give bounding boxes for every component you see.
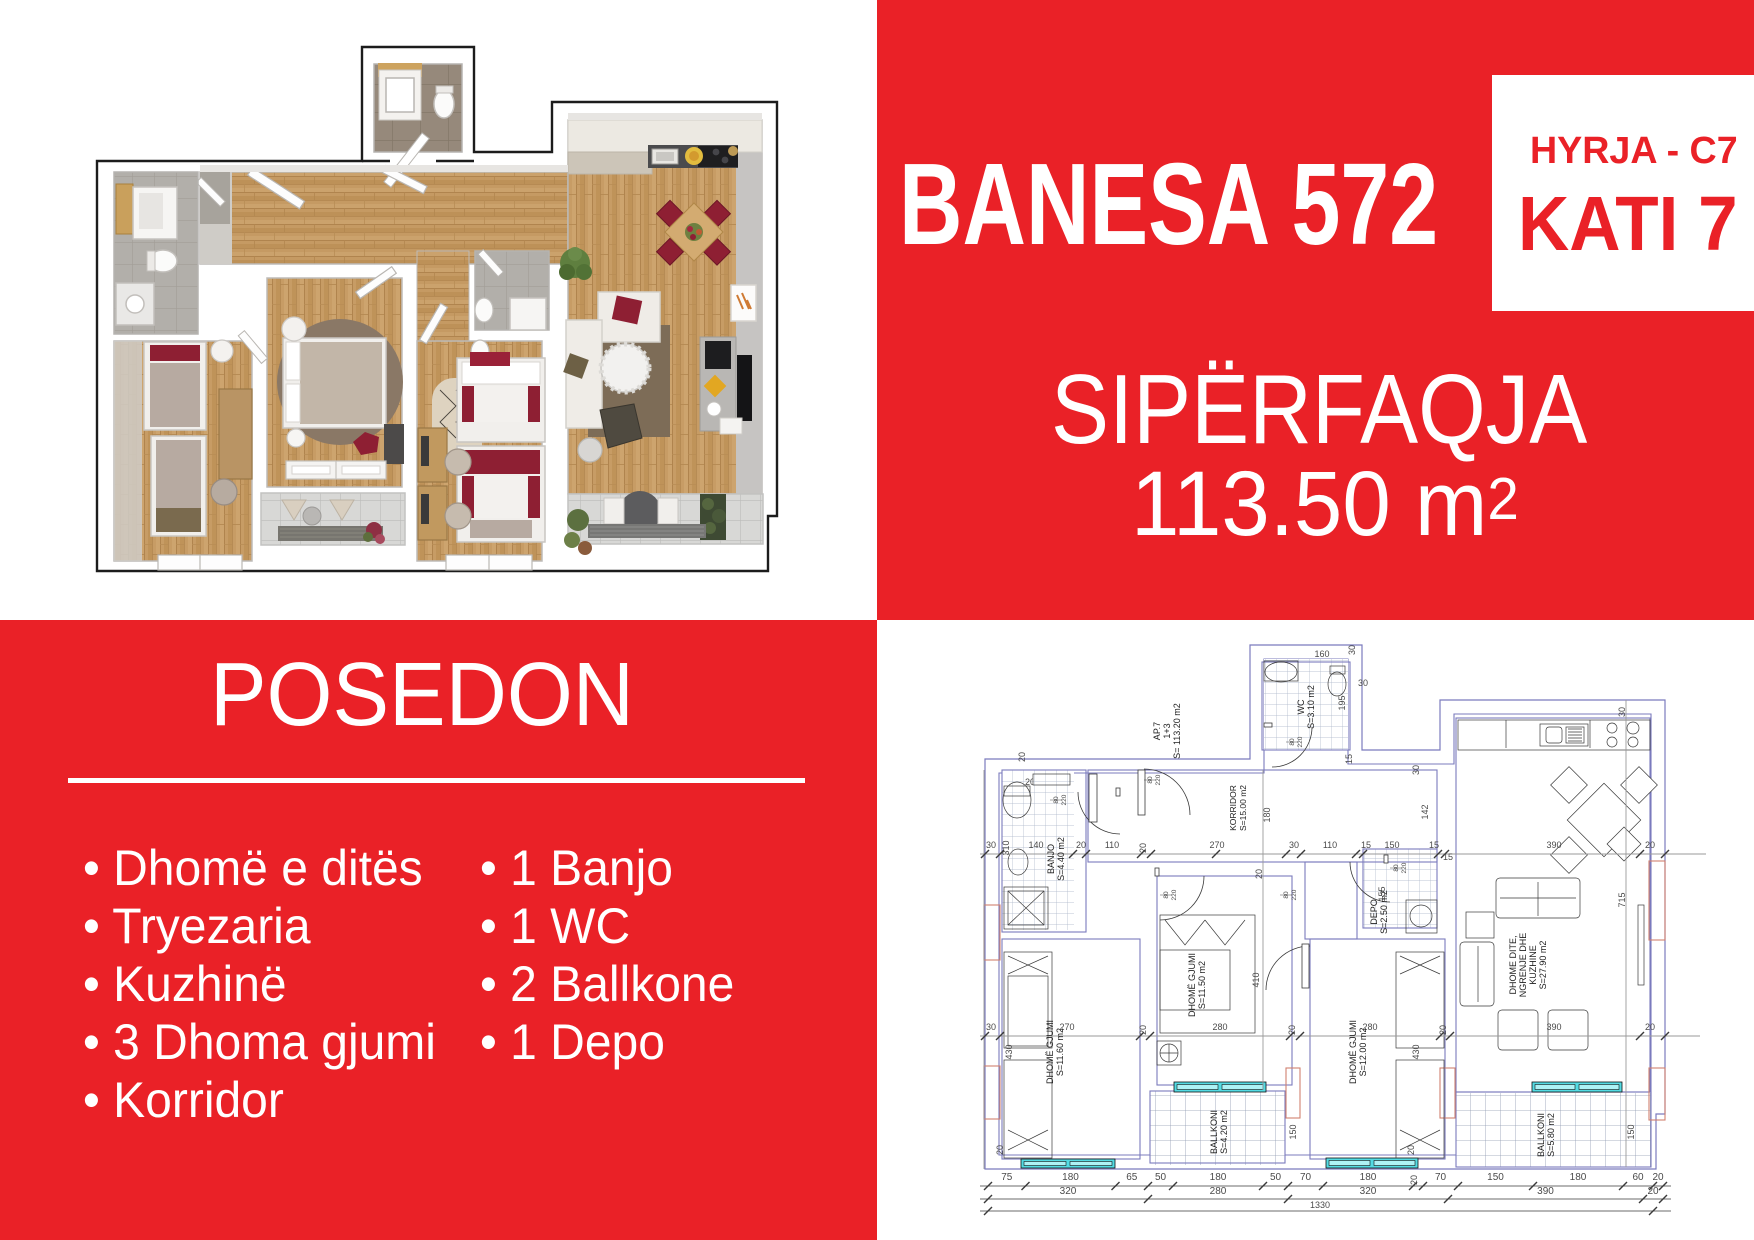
svg-text:20: 20	[1138, 843, 1148, 853]
svg-text:140: 140	[1028, 840, 1043, 850]
svg-text:430: 430	[1411, 1044, 1421, 1059]
svg-text:30: 30	[1411, 765, 1421, 775]
svg-text:KORRIDOR: KORRIDOR	[1228, 785, 1238, 831]
svg-text:30: 30	[1289, 840, 1299, 850]
svg-text:150: 150	[1384, 840, 1399, 850]
svg-text:180: 180	[1210, 1172, 1227, 1183]
svg-text:180: 180	[1262, 807, 1272, 822]
svg-text:65: 65	[1126, 1172, 1138, 1183]
svg-text:142: 142	[1420, 804, 1430, 819]
svg-text:DHOMË GJUMI: DHOMË GJUMI	[1045, 1020, 1055, 1084]
svg-text:430: 430	[1004, 1044, 1014, 1059]
svg-text:150: 150	[1288, 1124, 1298, 1139]
svg-text:150: 150	[1487, 1172, 1504, 1183]
svg-text:20: 20	[1287, 1025, 1297, 1035]
svg-text:60: 60	[1632, 1172, 1644, 1183]
svg-text:20: 20	[1076, 840, 1086, 850]
svg-text:270: 270	[1209, 840, 1224, 850]
svg-text:220: 220	[1171, 889, 1178, 900]
svg-text:70: 70	[1300, 1172, 1312, 1183]
svg-text:AP.7: AP.7	[1152, 722, 1162, 740]
svg-text:410: 410	[1251, 972, 1261, 987]
svg-text:S=4.20 m2: S=4.20 m2	[1219, 1110, 1229, 1154]
svg-text:180: 180	[1360, 1172, 1377, 1183]
svg-text:20: 20	[1645, 840, 1655, 850]
svg-text:150: 150	[1626, 1124, 1636, 1139]
svg-text:20: 20	[1645, 1022, 1655, 1032]
svg-text:30: 30	[1358, 678, 1368, 688]
svg-text:20: 20	[1647, 1186, 1659, 1197]
svg-text:20: 20	[1138, 1025, 1148, 1035]
svg-text:NGRENJE DHE: NGRENJE DHE	[1518, 933, 1528, 998]
svg-text:110: 110	[1323, 840, 1337, 850]
svg-text:S=2.50 m2: S=2.50 m2	[1379, 890, 1389, 934]
svg-text:BALLKONI: BALLKONI	[1536, 1113, 1546, 1157]
svg-text:390: 390	[1546, 840, 1561, 850]
svg-text:220: 220	[1291, 889, 1298, 900]
svg-text:320: 320	[1060, 1186, 1077, 1197]
svg-text:180: 180	[1062, 1172, 1079, 1183]
svg-text:310: 310	[1001, 840, 1011, 855]
svg-text:30: 30	[1617, 707, 1627, 717]
svg-text:DHOMË GJUMI: DHOMË GJUMI	[1348, 1020, 1358, 1084]
svg-text:15: 15	[1361, 840, 1371, 850]
svg-text:S=4.40 m2: S=4.40 m2	[1056, 837, 1066, 881]
svg-text:220: 220	[1061, 794, 1068, 805]
svg-text:15: 15	[1344, 754, 1354, 764]
svg-text:110: 110	[1105, 840, 1119, 850]
svg-text:50: 50	[1155, 1172, 1167, 1183]
svg-text:1330: 1330	[1310, 1200, 1330, 1210]
svg-text:S=11.50 m2: S=11.50 m2	[1197, 961, 1207, 1009]
svg-text:220: 220	[1401, 862, 1408, 873]
svg-text:DEPO: DEPO	[1369, 899, 1379, 925]
svg-text:S=5.80 m2: S=5.80 m2	[1546, 1113, 1556, 1157]
svg-text:20: 20	[1409, 1175, 1419, 1185]
svg-text:S=15.00 m2: S=15.00 m2	[1238, 785, 1248, 831]
svg-text:20: 20	[1254, 869, 1264, 879]
svg-text:20: 20	[995, 1145, 1005, 1155]
svg-text:BALLKONI: BALLKONI	[1209, 1110, 1219, 1154]
svg-text:70: 70	[1435, 1172, 1447, 1183]
svg-text:715: 715	[1617, 892, 1627, 907]
svg-text:220: 220	[1297, 736, 1304, 747]
svg-text:S= 113.20 m2: S= 113.20 m2	[1172, 703, 1182, 759]
svg-text:BANJO: BANJO	[1046, 844, 1056, 874]
svg-text:75: 75	[1001, 1172, 1013, 1183]
svg-text:320: 320	[1360, 1186, 1377, 1197]
svg-text:195: 195	[1337, 695, 1347, 710]
svg-text:1+3: 1+3	[1162, 723, 1172, 738]
svg-text:20: 20	[1017, 752, 1027, 762]
svg-text:20: 20	[1406, 1145, 1416, 1155]
svg-text:WC: WC	[1296, 699, 1306, 714]
svg-text:KUZHINE: KUZHINE	[1528, 945, 1538, 985]
svg-text:S=12.00 m2: S=12.00 m2	[1358, 1028, 1368, 1077]
svg-text:20: 20	[1652, 1172, 1664, 1183]
svg-text:30: 30	[1347, 645, 1357, 655]
svg-text:30: 30	[986, 1022, 996, 1032]
svg-text:20: 20	[1438, 1025, 1448, 1035]
svg-text:50: 50	[1270, 1172, 1282, 1183]
svg-text:390: 390	[1546, 1022, 1561, 1032]
svg-text:15: 15	[1429, 840, 1439, 850]
svg-text:220: 220	[1155, 774, 1162, 785]
svg-text:280: 280	[1210, 1186, 1227, 1197]
svg-text:DHOMË GJUMI: DHOMË GJUMI	[1187, 953, 1197, 1017]
svg-text:180: 180	[1570, 1172, 1587, 1183]
svg-text:DHOME DITE,: DHOME DITE,	[1508, 935, 1518, 994]
svg-text:S=11.60 m2: S=11.60 m2	[1055, 1028, 1065, 1076]
svg-text:280: 280	[1212, 1022, 1227, 1032]
svg-text:30: 30	[986, 840, 996, 850]
svg-text:15: 15	[1443, 852, 1453, 862]
svg-text:S=3.10 m2: S=3.10 m2	[1306, 685, 1316, 729]
svg-text:390: 390	[1537, 1186, 1554, 1197]
svg-text:S=27.90 m2: S=27.90 m2	[1538, 941, 1548, 990]
svg-text:160: 160	[1314, 649, 1329, 659]
